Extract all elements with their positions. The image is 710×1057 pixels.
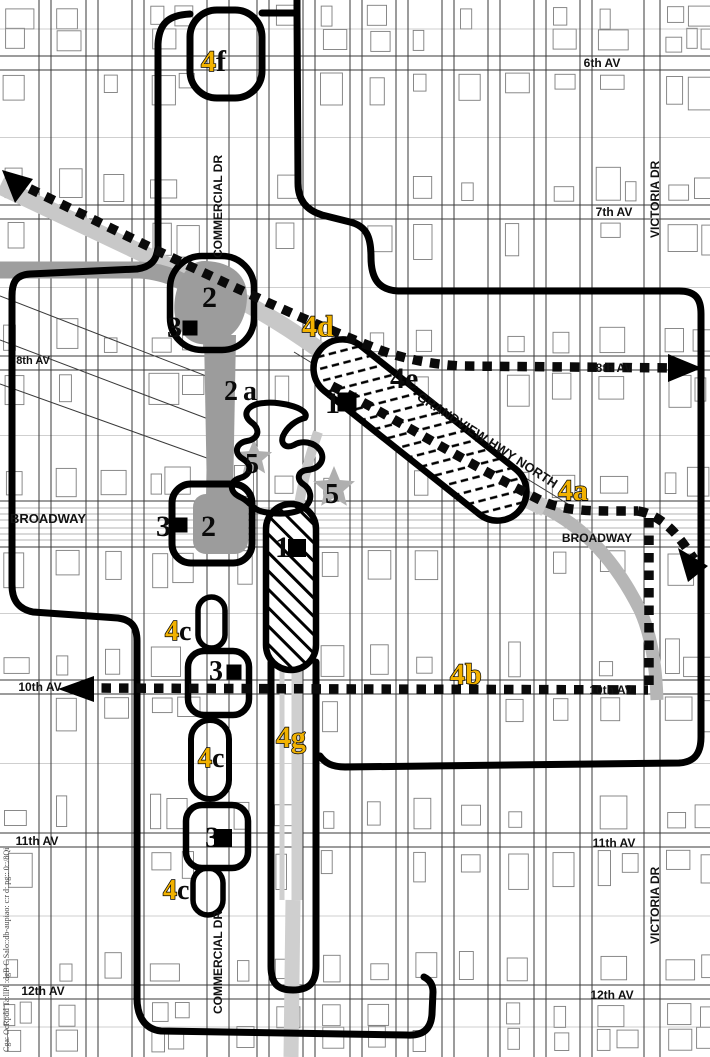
street-label-broadway-right: BROADWAY [562, 531, 632, 545]
zone-label-3-10th: 3 [209, 656, 223, 687]
street-label-commercial-dr-top: COMMERCIAL DR [211, 155, 225, 258]
street-label-8th-av-left: 8th AV [16, 355, 50, 367]
zone-label-2a: 2a [224, 376, 262, 407]
zone-label-4d: 4d [302, 310, 334, 343]
zone-label-4e: 4e [390, 362, 418, 395]
street-label-12th-av-right: 12th AV [590, 988, 633, 1002]
station-area-2a-corridor [204, 335, 236, 497]
zone-label-2-grandview: 2 [202, 281, 217, 314]
station-grandview-1-icon [338, 393, 357, 412]
zone-label-3-broadway: 3 [156, 510, 171, 543]
street-label-10th-av-right: 10th AV [589, 683, 632, 697]
zone-1-broadway-hatched [266, 504, 316, 670]
map-background [0, 0, 710, 1057]
zone-label-3-grandview: 3 [167, 311, 182, 344]
zone-label-4a: 4a [558, 474, 588, 507]
street-label-8th-av-right: 8th AV [596, 361, 633, 375]
map-side-caption: Cga: OcRpdd Ta:llPl :dgB C Salo::db-aupi… [2, 847, 11, 1052]
street-label-11th-av-left: 11th AV [16, 834, 59, 848]
station-11th-3-icon [214, 829, 232, 847]
zone-label-4c-mid: 4c [198, 743, 224, 774]
zone-label-4c-north: 4c [165, 616, 191, 647]
zone-label-4g: 4g [276, 721, 306, 754]
street-label-broadway-left: BROADWAY [10, 511, 86, 526]
station-broadway-1-icon [288, 539, 306, 557]
transit-plan-map: 6th AV7th AV8th AV8th AVBROADWAYBROADWAY… [0, 0, 710, 1057]
street-label-6th-av-right: 6th AV [584, 56, 621, 70]
zone-label-4c-south: 4c [163, 875, 189, 906]
street-label-12th-av-left: 12th AV [21, 984, 64, 998]
zone-label-5-east: 5 [325, 479, 339, 510]
map-canvas: 6th AV7th AV8th AV8th AVBROADWAYBROADWAY… [0, 0, 710, 1057]
street-label-victoria-dr-bottom: VICTORIA DR [648, 866, 662, 944]
street-label-commercial-dr-bottom: COMMERCIAL DR [211, 911, 225, 1014]
station-grandview-3-icon [183, 321, 198, 336]
zone-label-2-broadway: 2 [201, 510, 216, 543]
street-label-11th-av-right: 11th AV [593, 836, 636, 850]
zone-label-1-broadway: 1 [275, 531, 290, 564]
station-broadway-3-icon [173, 518, 188, 533]
street-label-10th-av-left: 10th AV [18, 680, 61, 694]
zone-label-5-west: 5 [245, 449, 259, 480]
street-label-victoria-dr-top: VICTORIA DR [648, 160, 662, 238]
street-label-7th-av-right: 7th AV [596, 205, 633, 219]
zone-label-4f: 4f [201, 45, 227, 78]
station-10th-3-icon [227, 665, 242, 680]
zone-label-4b: 4b [450, 658, 482, 691]
